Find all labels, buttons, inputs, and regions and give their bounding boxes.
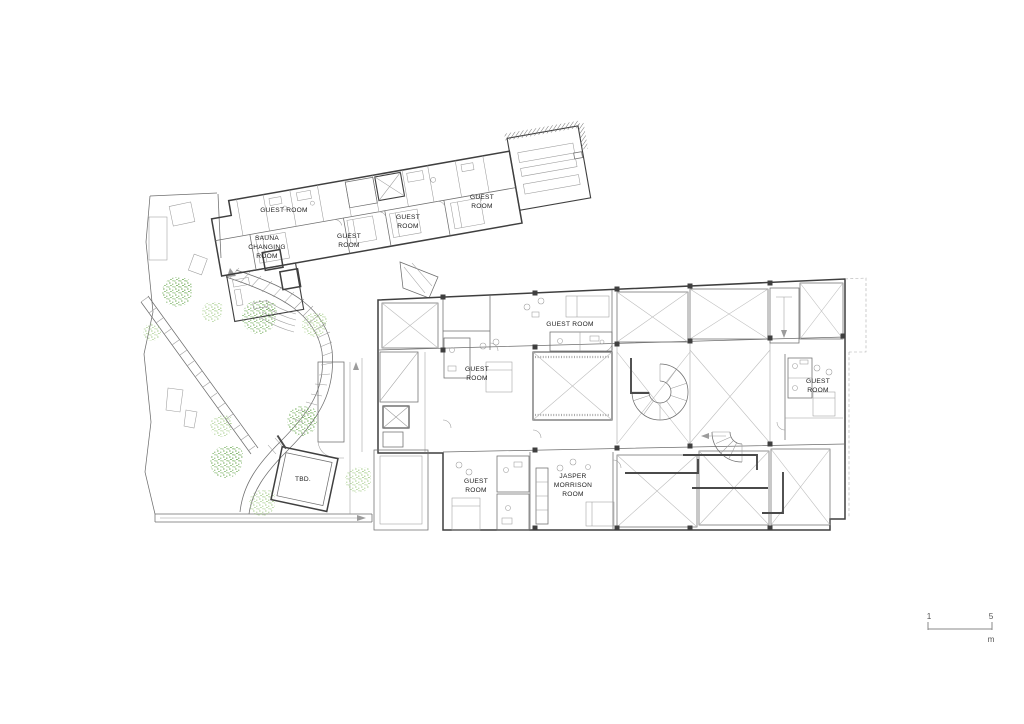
x-panel bbox=[382, 303, 438, 348]
room-label: ROOM bbox=[807, 387, 829, 394]
terrain-step bbox=[184, 410, 197, 428]
spiral-stair bbox=[631, 358, 688, 420]
tree bbox=[162, 277, 192, 307]
room-label: GUEST ROOM bbox=[260, 207, 307, 214]
shaft bbox=[383, 432, 403, 447]
room-label: MORRISON bbox=[554, 482, 592, 489]
sink bbox=[590, 336, 599, 341]
room-label: ROOM bbox=[562, 491, 584, 498]
arrow-head-icon bbox=[353, 362, 359, 370]
property-line bbox=[845, 278, 866, 518]
sink bbox=[448, 366, 456, 371]
column-grid-lines bbox=[425, 339, 843, 452]
scale-start-label: 1 bbox=[927, 612, 932, 621]
room-label: ROOM bbox=[338, 242, 360, 249]
tree bbox=[202, 302, 223, 322]
toilet bbox=[504, 468, 509, 473]
table bbox=[532, 312, 539, 317]
bed bbox=[813, 392, 835, 416]
chair bbox=[524, 304, 530, 310]
arrow-head-icon bbox=[701, 433, 709, 439]
planter bbox=[169, 202, 195, 226]
hatched-edge bbox=[578, 123, 588, 150]
arrow-head-icon bbox=[781, 330, 787, 338]
room-label: GUEST bbox=[396, 214, 420, 221]
guest-room-sw-furniture bbox=[452, 456, 529, 530]
tree bbox=[249, 490, 275, 516]
planter bbox=[149, 217, 167, 260]
room-label: JASPER bbox=[559, 473, 586, 480]
x-panel bbox=[690, 289, 768, 339]
room-label: TBD. bbox=[295, 476, 311, 483]
chair bbox=[466, 469, 472, 475]
room-label: GUEST bbox=[464, 478, 488, 485]
terrain-step bbox=[166, 388, 183, 412]
room-partitions-north bbox=[237, 156, 490, 236]
toilet bbox=[506, 506, 511, 511]
room-label: GUEST ROOM bbox=[546, 321, 593, 328]
chair bbox=[456, 462, 462, 468]
x-panel bbox=[617, 292, 688, 342]
site-boundary-left bbox=[144, 196, 155, 514]
site-boundary-top bbox=[150, 193, 217, 196]
stair-arrow-line bbox=[776, 297, 792, 333]
sink bbox=[502, 518, 512, 524]
atrium-skylight bbox=[533, 352, 612, 420]
path-steps bbox=[229, 268, 333, 454]
stair-core bbox=[345, 177, 377, 207]
main-building bbox=[374, 278, 866, 531]
room-label: SAUNA bbox=[255, 235, 279, 242]
x-panel bbox=[617, 455, 697, 527]
scale-bar: 1 5 m bbox=[927, 612, 995, 644]
bathroom bbox=[550, 332, 612, 351]
elevator-x bbox=[383, 406, 409, 428]
room-label: GUEST bbox=[337, 233, 361, 240]
gallery-walls bbox=[625, 455, 783, 513]
sink bbox=[514, 462, 522, 467]
chair bbox=[814, 365, 820, 371]
garden-ramp bbox=[141, 296, 258, 454]
room-label: ROOM bbox=[256, 253, 278, 260]
room-label: ROOM bbox=[397, 223, 419, 230]
scale-unit-label: m bbox=[988, 635, 995, 644]
arrow-head-icon bbox=[357, 515, 366, 521]
hatched-edge bbox=[504, 121, 580, 141]
room-label: ROOM bbox=[471, 203, 493, 210]
room-label: GUEST bbox=[806, 378, 830, 385]
chair bbox=[586, 465, 591, 470]
sink bbox=[800, 360, 808, 364]
sunken-court bbox=[374, 450, 428, 530]
bed bbox=[566, 296, 609, 317]
bathroom bbox=[497, 456, 529, 492]
chair bbox=[538, 298, 544, 304]
room-label: ROOM bbox=[466, 375, 488, 382]
tree bbox=[210, 415, 232, 437]
toilet bbox=[793, 386, 798, 391]
trees bbox=[143, 277, 371, 516]
tree bbox=[143, 323, 161, 341]
room-label: GUEST bbox=[465, 366, 489, 373]
floor-plan-drawing: GUEST ROOM SAUNA CHANGING ROOM GUEST ROO… bbox=[0, 0, 1024, 724]
bathroom bbox=[497, 494, 529, 530]
room-label: GUEST bbox=[470, 194, 494, 201]
chair bbox=[570, 459, 576, 465]
toilet bbox=[793, 364, 798, 369]
chair bbox=[826, 369, 832, 375]
guest-room-west-furniture bbox=[444, 338, 512, 392]
room-labels: GUEST ROOM SAUNA CHANGING ROOM GUEST ROO… bbox=[248, 194, 830, 498]
scale-end-label: 5 bbox=[989, 612, 994, 621]
planter bbox=[188, 254, 207, 275]
bed bbox=[486, 362, 512, 392]
room-label: CHANGING bbox=[248, 244, 286, 251]
bed bbox=[586, 502, 614, 526]
x-panel bbox=[800, 283, 843, 339]
chair bbox=[480, 343, 486, 349]
tree bbox=[287, 406, 317, 436]
toilet bbox=[558, 339, 563, 344]
tree bbox=[302, 313, 327, 337]
room-label: ROOM bbox=[465, 487, 487, 494]
floor-braces bbox=[617, 350, 770, 444]
tree bbox=[210, 446, 243, 478]
tree bbox=[345, 467, 371, 493]
door-swings bbox=[334, 194, 482, 227]
bed bbox=[452, 498, 480, 530]
stair-diagonal bbox=[380, 352, 418, 401]
chair bbox=[557, 465, 563, 471]
scale-bar-line bbox=[928, 622, 992, 630]
connector bbox=[400, 262, 438, 298]
interior-walls bbox=[443, 290, 785, 530]
ramp-treads bbox=[141, 297, 255, 451]
site-boundary-inner bbox=[218, 194, 221, 258]
